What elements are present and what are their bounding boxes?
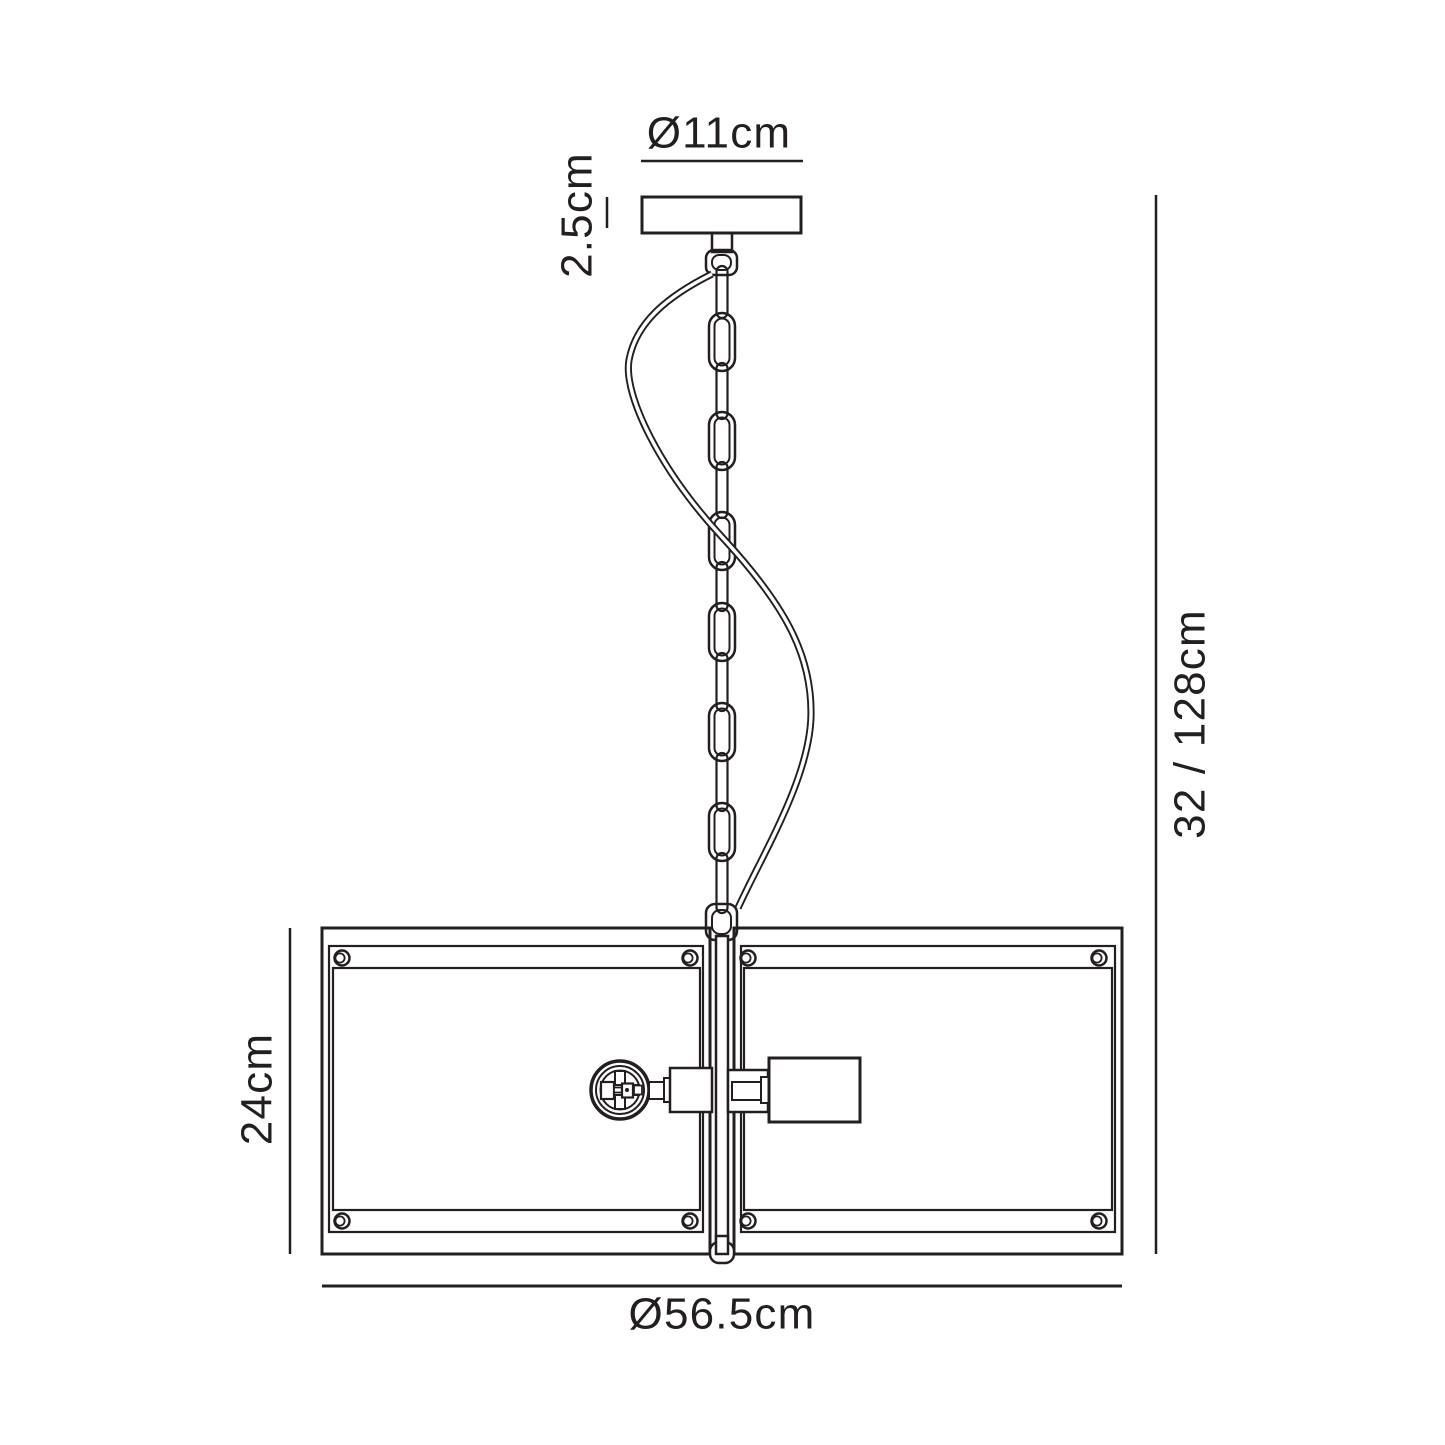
lamp-socket — [769, 1058, 860, 1122]
ceiling-plate — [642, 197, 801, 275]
rivet — [683, 951, 698, 966]
rivet — [741, 1214, 756, 1229]
label-canopy-height: 2.5cm — [553, 152, 602, 278]
rivet — [1092, 1214, 1107, 1229]
label-shade-width: Ø56.5cm — [629, 1290, 816, 1339]
dimension-diagram: Ø11cm 2.5cm — [0, 0, 1445, 1445]
rivet — [741, 951, 756, 966]
suspension-chain — [706, 266, 737, 940]
rivet — [335, 1214, 350, 1229]
label-drop-height: 32 / 128cm — [1166, 609, 1215, 839]
label-shade-height: 24cm — [233, 1033, 282, 1145]
diagram-canvas: Ø11cm 2.5cm — [0, 0, 1445, 1445]
rivet — [683, 1214, 698, 1229]
suspension-cable — [628, 274, 811, 908]
holder-bracket-left — [670, 1068, 712, 1112]
rivet — [335, 951, 350, 966]
label-canopy-diameter: Ø11cm — [647, 109, 792, 158]
holder-neck-right — [732, 1082, 763, 1100]
rivet — [1092, 951, 1107, 966]
lamp-holder-end-view — [591, 1061, 649, 1119]
